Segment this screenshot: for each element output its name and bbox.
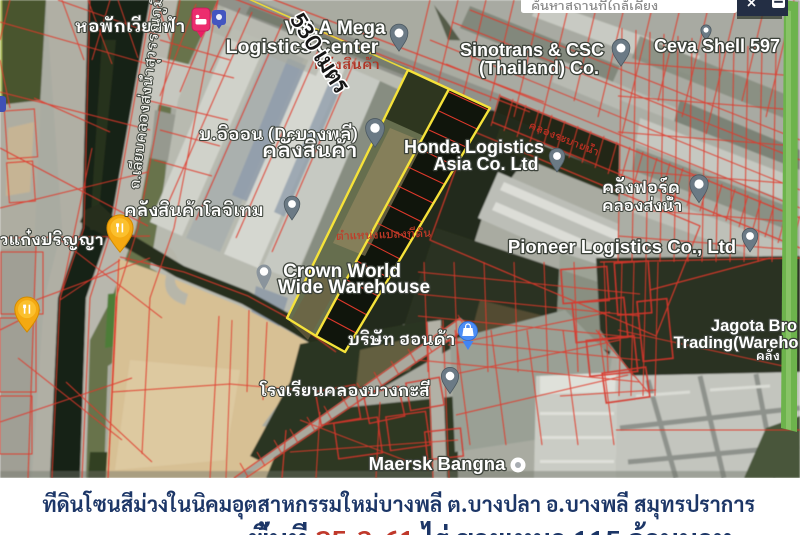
- svg-text:Jagota Bro: Jagota Bro: [711, 317, 797, 335]
- svg-text:Maersk Bangna: Maersk Bangna: [369, 453, 506, 474]
- svg-text:Wide Warehouse: Wide Warehouse: [278, 277, 430, 298]
- svg-text:Sinotrans & CSC: Sinotrans & CSC: [460, 40, 604, 60]
- svg-text:(Thailand) Co.: (Thailand) Co.: [479, 58, 599, 78]
- svg-text:Pioneer Logistics Co., Ltd: Pioneer Logistics Co., Ltd: [508, 236, 736, 257]
- svg-text:Ceva Shell 597: Ceva Shell 597: [654, 36, 780, 56]
- svg-text:Trading(Wareho: Trading(Wareho: [674, 334, 799, 352]
- svg-text:Asia Co. Ltd: Asia Co. Ltd: [433, 154, 538, 174]
